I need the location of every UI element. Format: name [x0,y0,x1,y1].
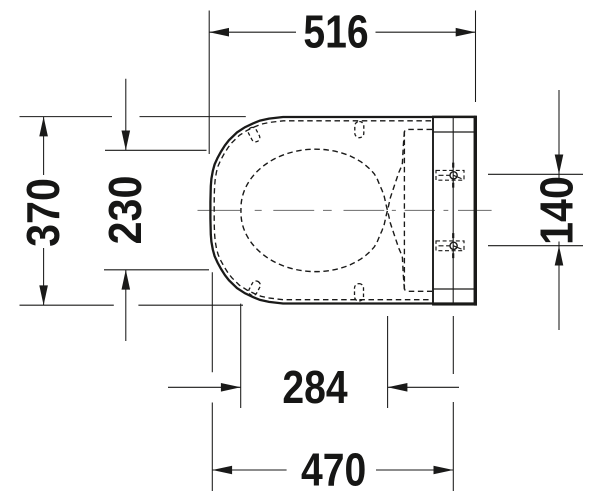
svg-text:470: 470 [301,444,366,496]
svg-text:370: 370 [18,178,70,247]
svg-text:516: 516 [303,7,368,59]
svg-text:140: 140 [532,176,584,245]
svg-text:230: 230 [100,176,152,245]
svg-text:284: 284 [282,362,347,414]
